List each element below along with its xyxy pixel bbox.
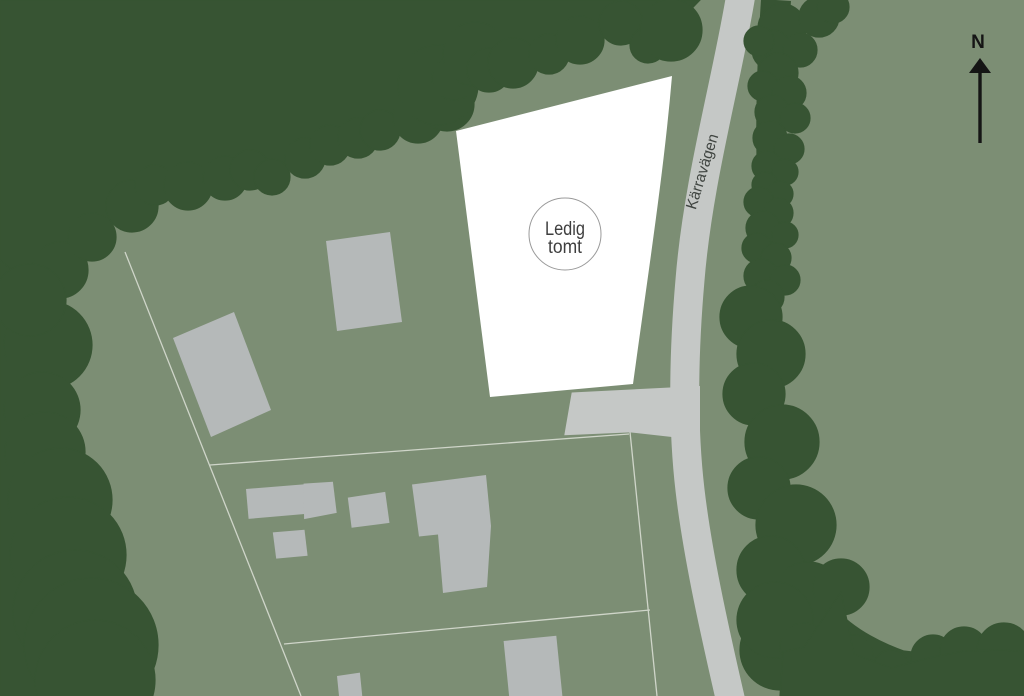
svg-text:tomt: tomt bbox=[548, 237, 583, 258]
svg-text:N: N bbox=[971, 32, 985, 53]
